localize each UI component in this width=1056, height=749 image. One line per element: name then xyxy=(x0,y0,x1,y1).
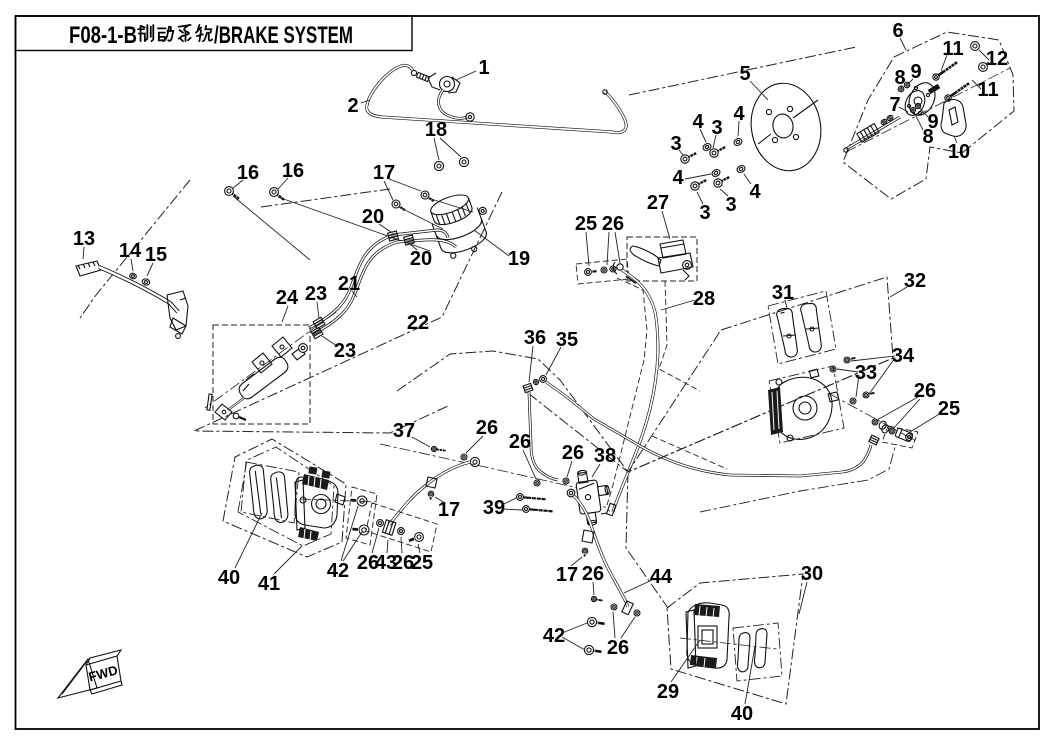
svg-text:26: 26 xyxy=(602,213,624,235)
svg-text:4: 4 xyxy=(749,181,761,203)
svg-text:24: 24 xyxy=(276,287,299,309)
svg-text:37: 37 xyxy=(393,420,415,442)
svg-text:30: 30 xyxy=(801,563,823,585)
svg-text:25: 25 xyxy=(411,552,433,574)
svg-text:19: 19 xyxy=(508,248,530,270)
svg-text:21: 21 xyxy=(338,273,360,295)
svg-text:2: 2 xyxy=(347,95,358,117)
svg-text:3: 3 xyxy=(699,202,710,224)
svg-text:36: 36 xyxy=(524,327,546,349)
svg-text:11: 11 xyxy=(942,38,963,60)
svg-text:27: 27 xyxy=(647,192,669,214)
svg-text:13: 13 xyxy=(73,228,95,250)
svg-text:16: 16 xyxy=(237,162,259,184)
svg-text:25: 25 xyxy=(575,213,597,235)
svg-text:40: 40 xyxy=(218,567,240,589)
svg-text:3: 3 xyxy=(711,117,722,139)
svg-text:5: 5 xyxy=(739,63,750,85)
svg-text:44: 44 xyxy=(650,566,673,588)
svg-text:41: 41 xyxy=(258,573,280,595)
svg-text:F08-1-B: F08-1-B xyxy=(69,22,137,49)
svg-text:26: 26 xyxy=(914,380,936,402)
svg-text:12: 12 xyxy=(986,48,1008,70)
svg-text:26: 26 xyxy=(562,442,584,464)
svg-text:6: 6 xyxy=(892,20,903,42)
svg-text:17: 17 xyxy=(438,499,460,521)
svg-text:8: 8 xyxy=(894,67,905,89)
svg-text:29: 29 xyxy=(657,681,679,703)
svg-text:25: 25 xyxy=(938,398,960,420)
svg-text:23: 23 xyxy=(305,283,327,305)
svg-text:4: 4 xyxy=(672,167,684,189)
svg-text:28: 28 xyxy=(693,288,715,310)
svg-text:10: 10 xyxy=(948,141,970,163)
svg-text:40: 40 xyxy=(731,703,753,725)
svg-text:26: 26 xyxy=(607,637,629,659)
svg-text:14: 14 xyxy=(119,240,142,262)
svg-text:7: 7 xyxy=(889,94,900,116)
svg-text:/BRAKE SYSTEM: /BRAKE SYSTEM xyxy=(214,22,353,49)
svg-text:20: 20 xyxy=(410,248,432,270)
svg-text:42: 42 xyxy=(543,625,565,647)
svg-text:32: 32 xyxy=(904,270,926,292)
svg-text:3: 3 xyxy=(725,194,736,216)
svg-text:22: 22 xyxy=(407,312,429,334)
svg-text:42: 42 xyxy=(327,560,349,582)
svg-text:39: 39 xyxy=(483,497,505,519)
svg-text:26: 26 xyxy=(476,417,498,439)
svg-text:26: 26 xyxy=(582,563,604,585)
svg-text:35: 35 xyxy=(556,329,578,351)
svg-text:8: 8 xyxy=(922,126,933,148)
svg-text:38: 38 xyxy=(594,445,616,467)
svg-text:11: 11 xyxy=(977,79,998,101)
svg-text:17: 17 xyxy=(556,564,578,586)
svg-text:1: 1 xyxy=(478,57,489,79)
svg-text:23: 23 xyxy=(334,340,356,362)
svg-text:4: 4 xyxy=(692,111,704,133)
svg-text:16: 16 xyxy=(282,160,304,182)
svg-text:18: 18 xyxy=(425,119,447,141)
svg-text:26: 26 xyxy=(509,431,531,453)
svg-text:4: 4 xyxy=(733,103,745,125)
svg-text:17: 17 xyxy=(373,162,395,184)
svg-text:34: 34 xyxy=(892,345,915,367)
svg-text:31: 31 xyxy=(772,282,794,304)
svg-text:15: 15 xyxy=(145,244,167,266)
